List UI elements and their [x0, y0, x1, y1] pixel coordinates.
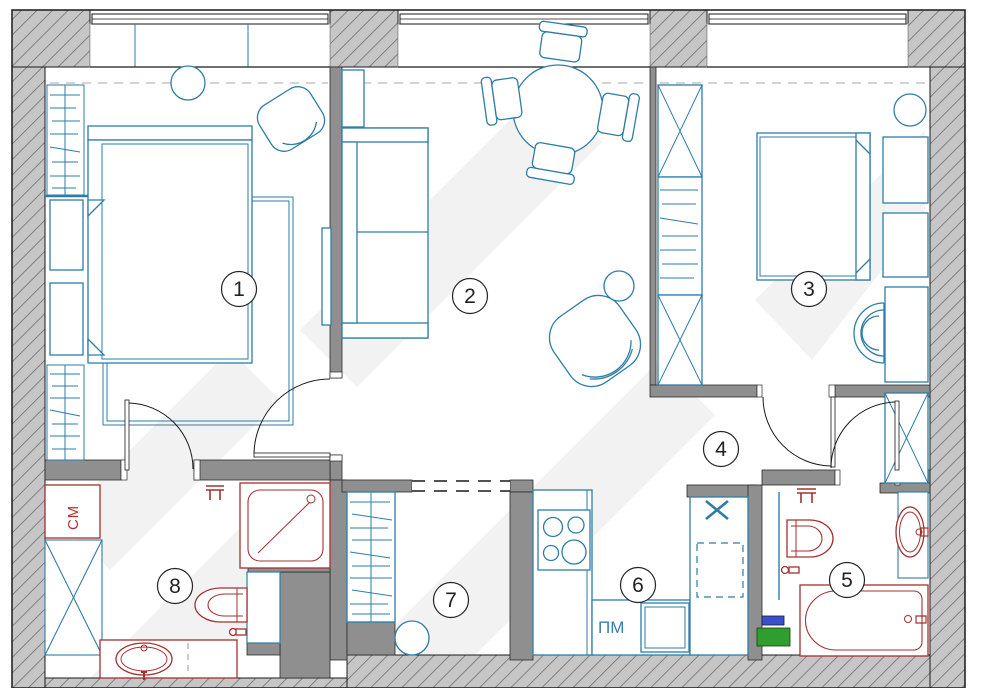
svg-text:8: 8 — [169, 575, 181, 598]
armrest — [342, 128, 428, 142]
ceiling-lamp-icon — [171, 66, 205, 100]
room-label-5: 5 — [830, 563, 865, 598]
wall-room2-room3 — [650, 67, 656, 385]
room-label-4: 4 — [704, 432, 739, 467]
clothes-rail-icon — [347, 492, 395, 622]
svg-text:1: 1 — [233, 278, 245, 301]
nightstand — [50, 283, 83, 355]
duct-bath8 — [280, 572, 330, 678]
vanity-sink — [100, 640, 237, 680]
counter-right — [690, 497, 748, 655]
duct-panel — [247, 572, 280, 643]
wall-block-closet — [347, 622, 395, 655]
wardrobe-icon — [885, 393, 928, 483]
wall-closet-kitchen — [510, 492, 533, 660]
faucet-icon — [230, 629, 247, 636]
wall-closet-top-right — [510, 480, 533, 492]
room-label-8: 8 — [158, 569, 193, 604]
wardrobe-icon — [658, 85, 702, 385]
room-label-2: 2 — [453, 279, 488, 314]
bathtub-icon — [800, 585, 928, 656]
double-bed — [88, 126, 252, 363]
dishwasher-label: ПМ — [598, 618, 624, 637]
svg-text:5: 5 — [841, 569, 853, 592]
ceiling-lamp-icon — [894, 94, 926, 126]
side-table — [604, 271, 634, 301]
wall-kitchen-top — [687, 485, 757, 497]
wall-room1-bath8-right — [194, 460, 330, 480]
green-marker — [757, 628, 790, 646]
windows — [90, 14, 908, 67]
cabinet — [342, 70, 364, 127]
toilet-icon — [787, 520, 833, 557]
kitchen-sink-icon — [641, 603, 689, 652]
svg-text:4: 4 — [715, 438, 727, 461]
double-bed — [757, 133, 870, 280]
wall-closet-top-left — [342, 480, 412, 492]
nightstand — [50, 200, 83, 270]
room-label-3: 3 — [792, 272, 827, 307]
pouf — [395, 621, 429, 655]
wall-room1-room2 — [330, 67, 342, 378]
room-label-1: 1 — [222, 272, 257, 307]
console — [322, 228, 331, 325]
window-bedroom-2 — [707, 14, 908, 67]
svg-text:2: 2 — [464, 285, 476, 308]
room-label-7: 7 — [434, 583, 469, 618]
wall-room3-hall-left — [650, 385, 757, 397]
washing-machine-label: СМ — [65, 505, 82, 530]
tall-cabinet-icon — [45, 540, 102, 655]
radiator-icon — [47, 365, 84, 460]
svg-text:7: 7 — [445, 589, 457, 612]
faucet-icon — [782, 567, 800, 574]
armrest — [342, 323, 428, 338]
headboard — [856, 133, 870, 280]
svg-text:3: 3 — [803, 278, 815, 301]
sofa — [342, 128, 428, 338]
dining-table — [513, 65, 603, 155]
blue-marker — [762, 616, 784, 625]
floor-plan-page: 1 2 3 4 5 6 7 8 СМ ПМ — [0, 0, 997, 688]
stove-icon — [538, 510, 590, 570]
nightstand — [883, 213, 928, 277]
svg-text:6: 6 — [632, 574, 644, 597]
window-living-room — [398, 14, 650, 67]
dining-chair — [481, 73, 523, 126]
closet-opening — [412, 480, 510, 492]
vanity-sink — [896, 492, 928, 578]
window-bedroom-1 — [90, 14, 330, 67]
wall-bath8-closet — [330, 480, 347, 660]
nightstand — [883, 137, 928, 203]
toilet-icon — [195, 588, 247, 622]
desk — [885, 287, 928, 382]
room-label-6: 6 — [621, 568, 656, 603]
dining-chair — [535, 21, 588, 63]
backrest — [342, 142, 357, 323]
wall-room1-bath8-left — [45, 460, 121, 480]
radiator-icon — [47, 85, 84, 195]
floor-plan-drawing: 1 2 3 4 5 6 7 8 СМ ПМ — [0, 0, 997, 688]
headboard — [88, 126, 252, 140]
shower-icon — [240, 483, 330, 568]
wall-hall-bath5-left — [762, 470, 835, 485]
hallway — [885, 393, 928, 483]
